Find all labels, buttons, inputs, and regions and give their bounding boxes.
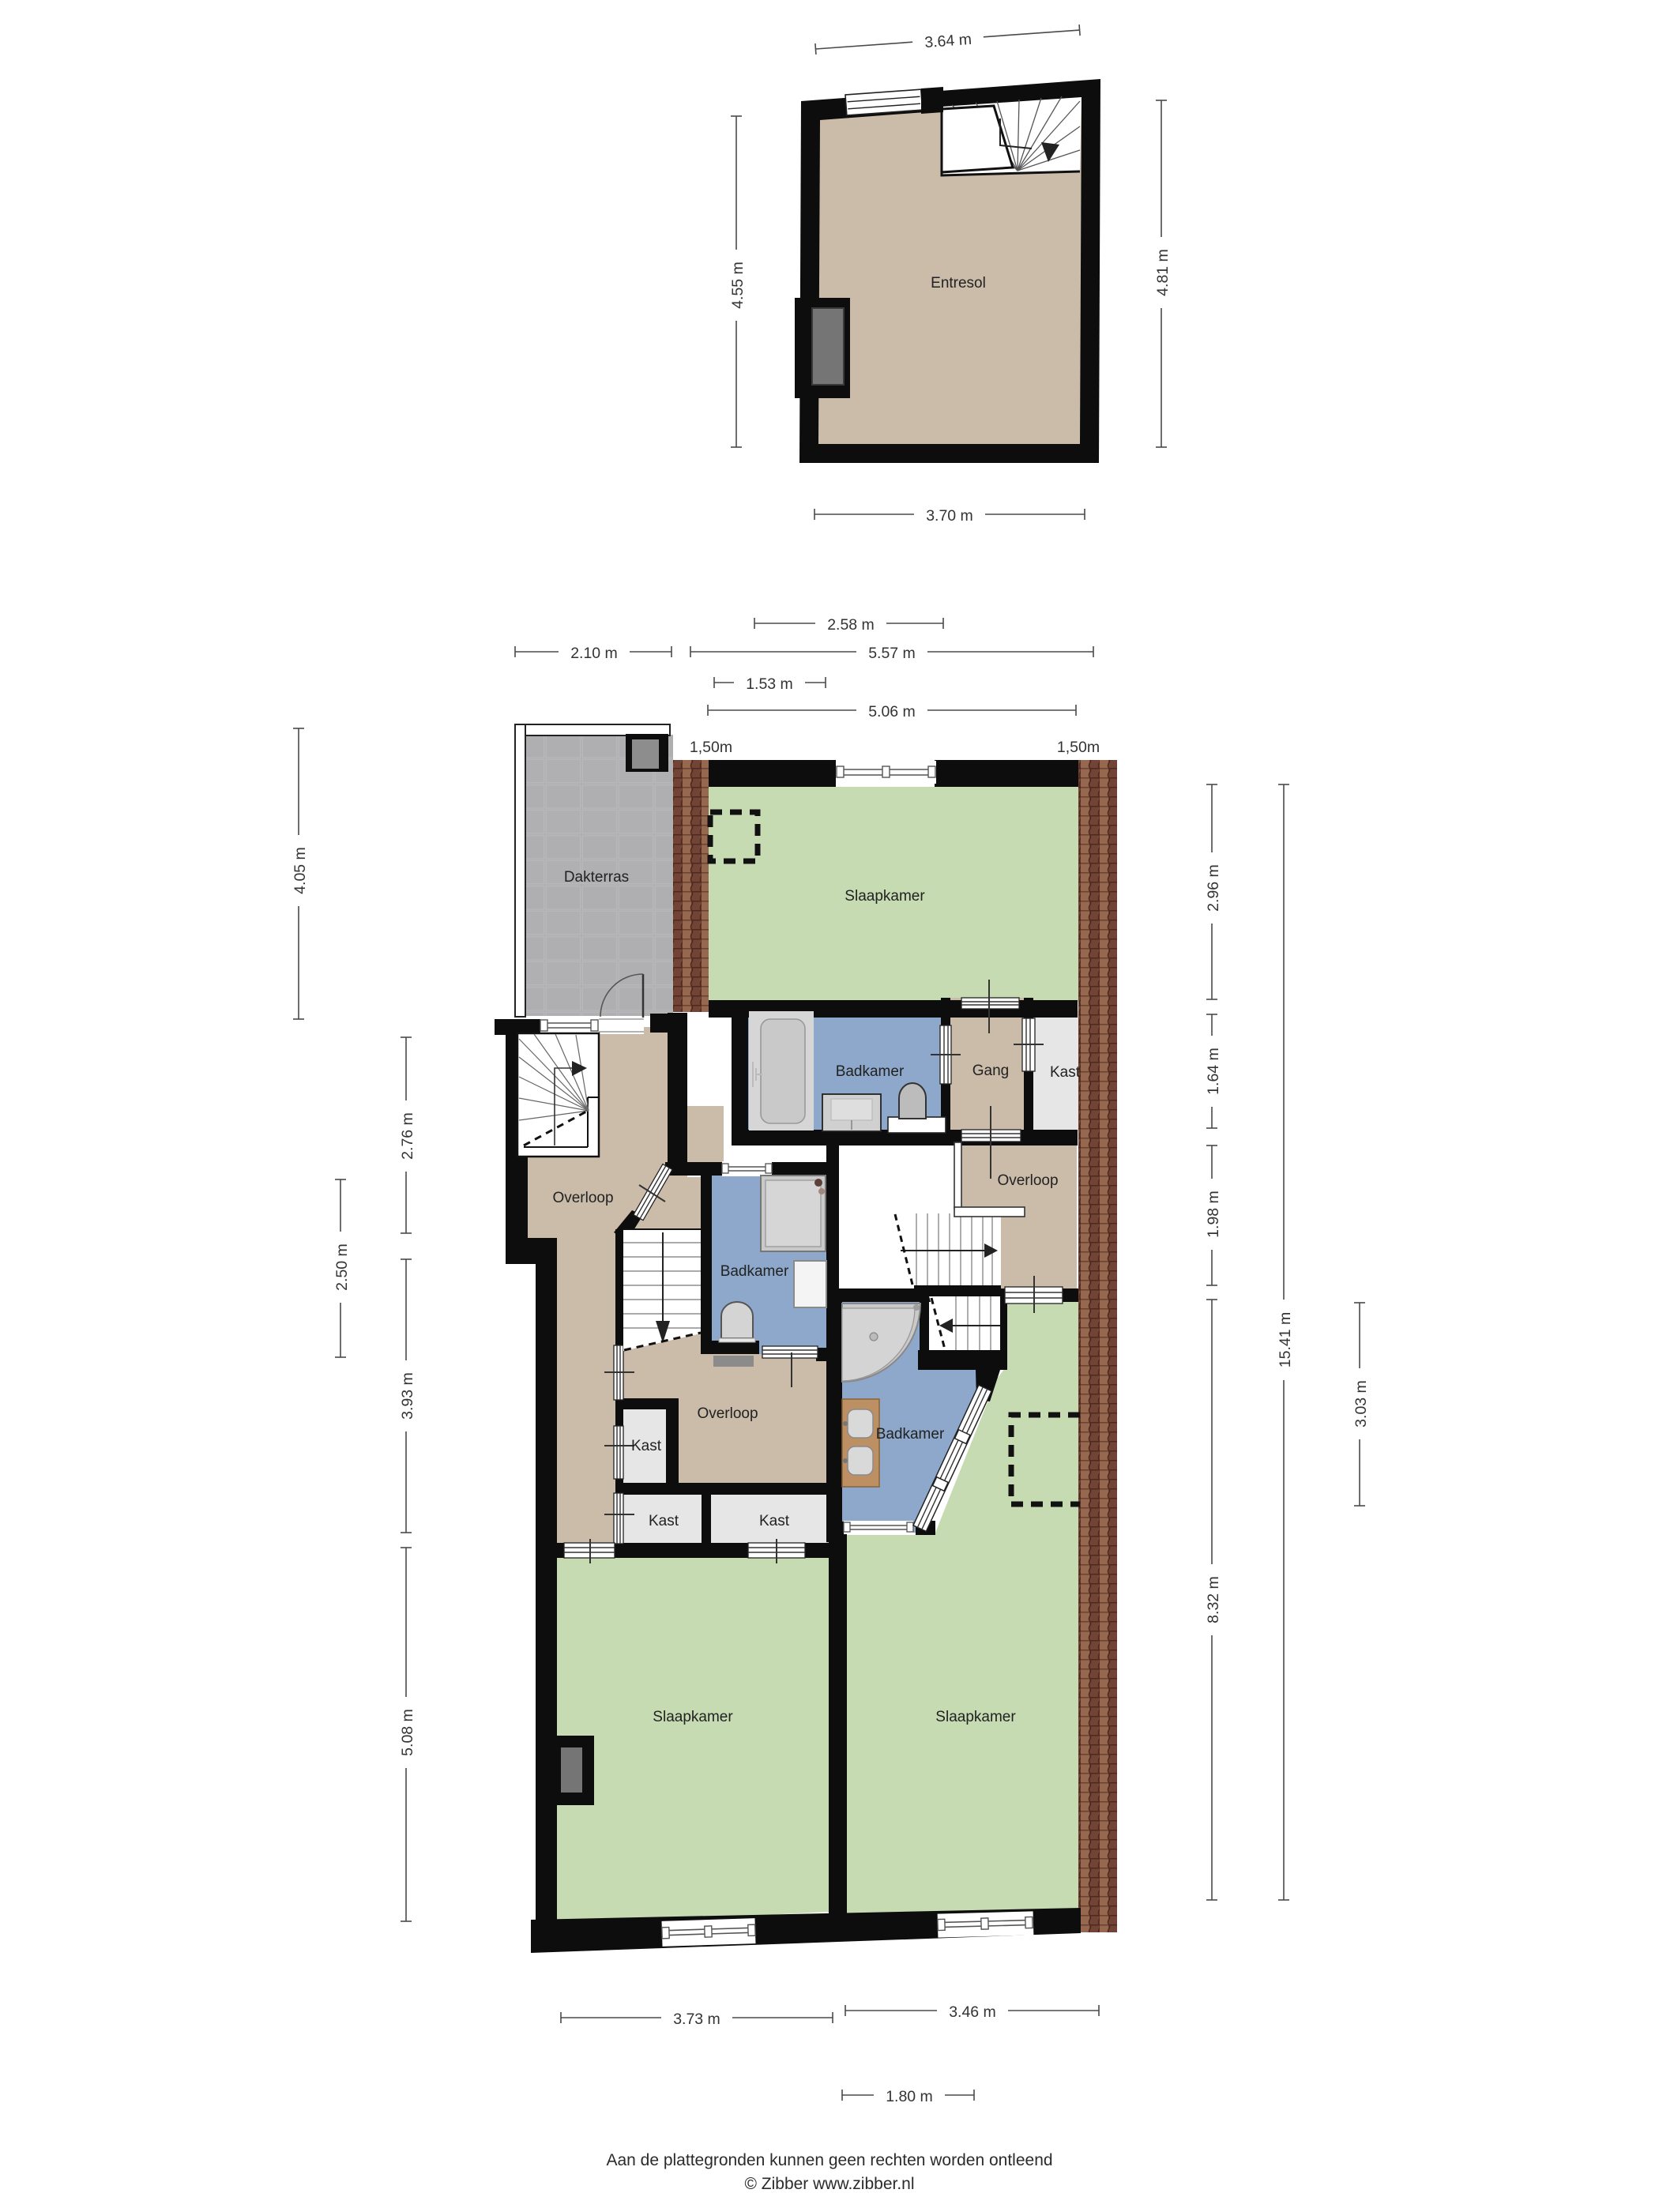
- svg-text:Kast: Kast: [759, 1513, 790, 1529]
- svg-text:Gang: Gang: [972, 1063, 1009, 1079]
- svg-text:2.10 m: 2.10 m: [570, 645, 618, 662]
- svg-text:Badkamer: Badkamer: [836, 1063, 905, 1080]
- svg-text:3.93 m: 3.93 m: [399, 1372, 416, 1420]
- svg-text:2.50 m: 2.50 m: [333, 1243, 351, 1291]
- svg-text:8.32 m: 8.32 m: [1205, 1576, 1222, 1623]
- svg-text:2.96 m: 2.96 m: [1205, 864, 1222, 912]
- svg-text:3.64 m: 3.64 m: [924, 31, 972, 51]
- svg-text:Slaapkamer: Slaapkamer: [935, 1709, 1016, 1725]
- svg-text:5.08 m: 5.08 m: [399, 1709, 416, 1756]
- svg-text:5.57 m: 5.57 m: [868, 645, 916, 662]
- svg-text:4.55 m: 4.55 m: [729, 261, 747, 309]
- svg-text:3.03 m: 3.03 m: [1352, 1380, 1370, 1428]
- svg-text:1,50m: 1,50m: [1057, 739, 1100, 756]
- svg-text:Slaapkamer: Slaapkamer: [845, 888, 925, 905]
- svg-text:15.41 m: 15.41 m: [1277, 1312, 1294, 1367]
- svg-text:4.05 m: 4.05 m: [292, 847, 309, 894]
- svg-text:Entresol: Entresol: [931, 275, 986, 292]
- svg-text:Overloop: Overloop: [552, 1190, 613, 1206]
- svg-text:3.73 m: 3.73 m: [673, 2011, 720, 2028]
- svg-text:2.76 m: 2.76 m: [399, 1112, 416, 1160]
- svg-text:Kast: Kast: [649, 1513, 679, 1529]
- svg-text:1.80 m: 1.80 m: [886, 2088, 933, 2105]
- svg-text:Kast: Kast: [1050, 1064, 1081, 1081]
- svg-text:Badkamer: Badkamer: [720, 1263, 789, 1280]
- svg-text:5.06 m: 5.06 m: [868, 703, 916, 720]
- svg-text:3.46 m: 3.46 m: [949, 2003, 996, 2021]
- svg-text:Dakterras: Dakterras: [564, 869, 629, 886]
- svg-text:3.70 m: 3.70 m: [926, 507, 973, 525]
- svg-text:Badkamer: Badkamer: [876, 1426, 945, 1443]
- svg-text:© Zibber www.zibber.nl: © Zibber www.zibber.nl: [744, 2175, 914, 2193]
- svg-text:1.53 m: 1.53 m: [746, 675, 793, 693]
- svg-text:1,50m: 1,50m: [690, 739, 732, 756]
- svg-text:2.58 m: 2.58 m: [827, 616, 875, 634]
- svg-text:Overloop: Overloop: [697, 1405, 758, 1422]
- svg-text:1.64 m: 1.64 m: [1205, 1048, 1222, 1095]
- svg-text:Kast: Kast: [631, 1438, 662, 1454]
- svg-text:1.98 m: 1.98 m: [1205, 1191, 1222, 1238]
- svg-text:Aan de plattegronden kunnen ge: Aan de plattegronden kunnen geen rechten…: [606, 2151, 1052, 2169]
- svg-text:Overloop: Overloop: [997, 1172, 1058, 1189]
- svg-text:Slaapkamer: Slaapkamer: [653, 1709, 733, 1725]
- svg-text:4.81 m: 4.81 m: [1154, 249, 1172, 296]
